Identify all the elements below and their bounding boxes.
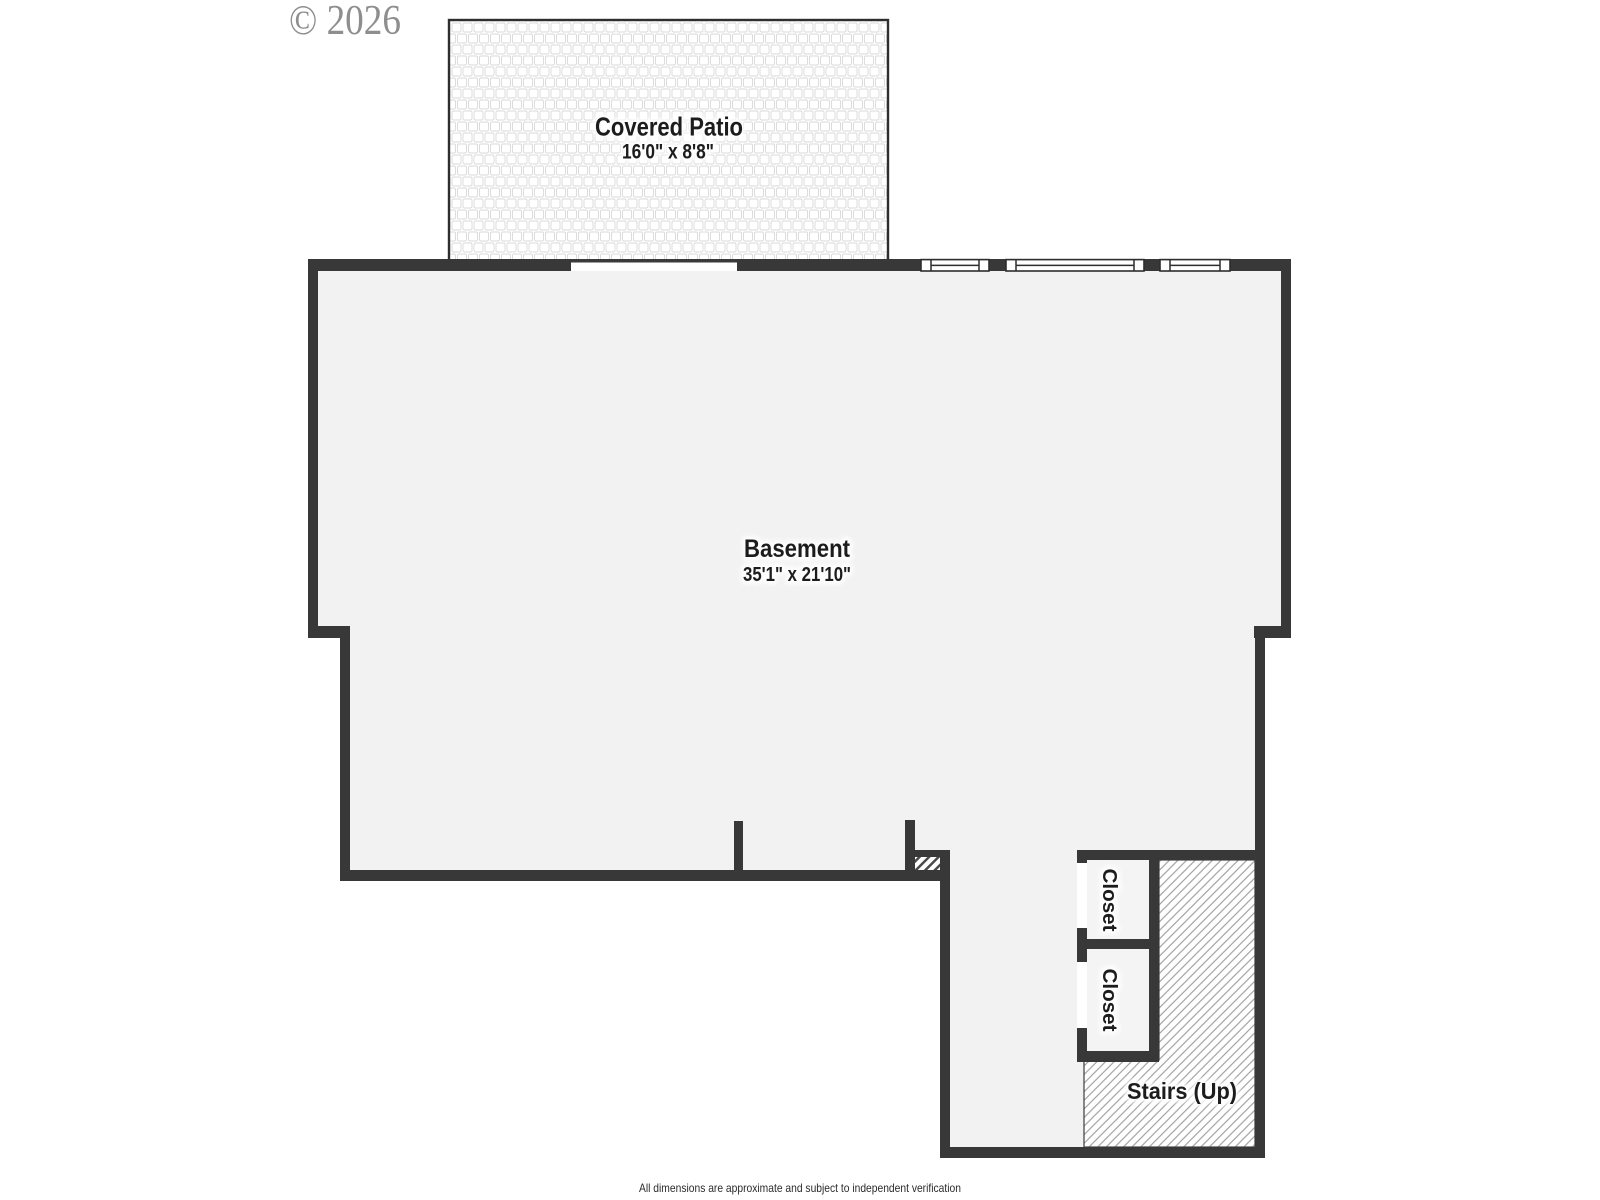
svg-text:© 2026: © 2026: [289, 0, 401, 44]
svg-text:Covered Patio: Covered Patio: [595, 112, 743, 142]
svg-text:Stairs (Up): Stairs (Up): [1127, 1078, 1237, 1104]
svg-text:Closet: Closet: [1098, 969, 1120, 1032]
svg-text:Basement: Basement: [744, 535, 851, 563]
svg-text:Closet: Closet: [1098, 869, 1120, 932]
svg-text:16'0" x 8'8": 16'0" x 8'8": [622, 141, 714, 164]
svg-text:All dimensions are approximate: All dimensions are approximate and subje…: [639, 1181, 961, 1195]
svg-text:35'1" x 21'10": 35'1" x 21'10": [743, 564, 851, 586]
